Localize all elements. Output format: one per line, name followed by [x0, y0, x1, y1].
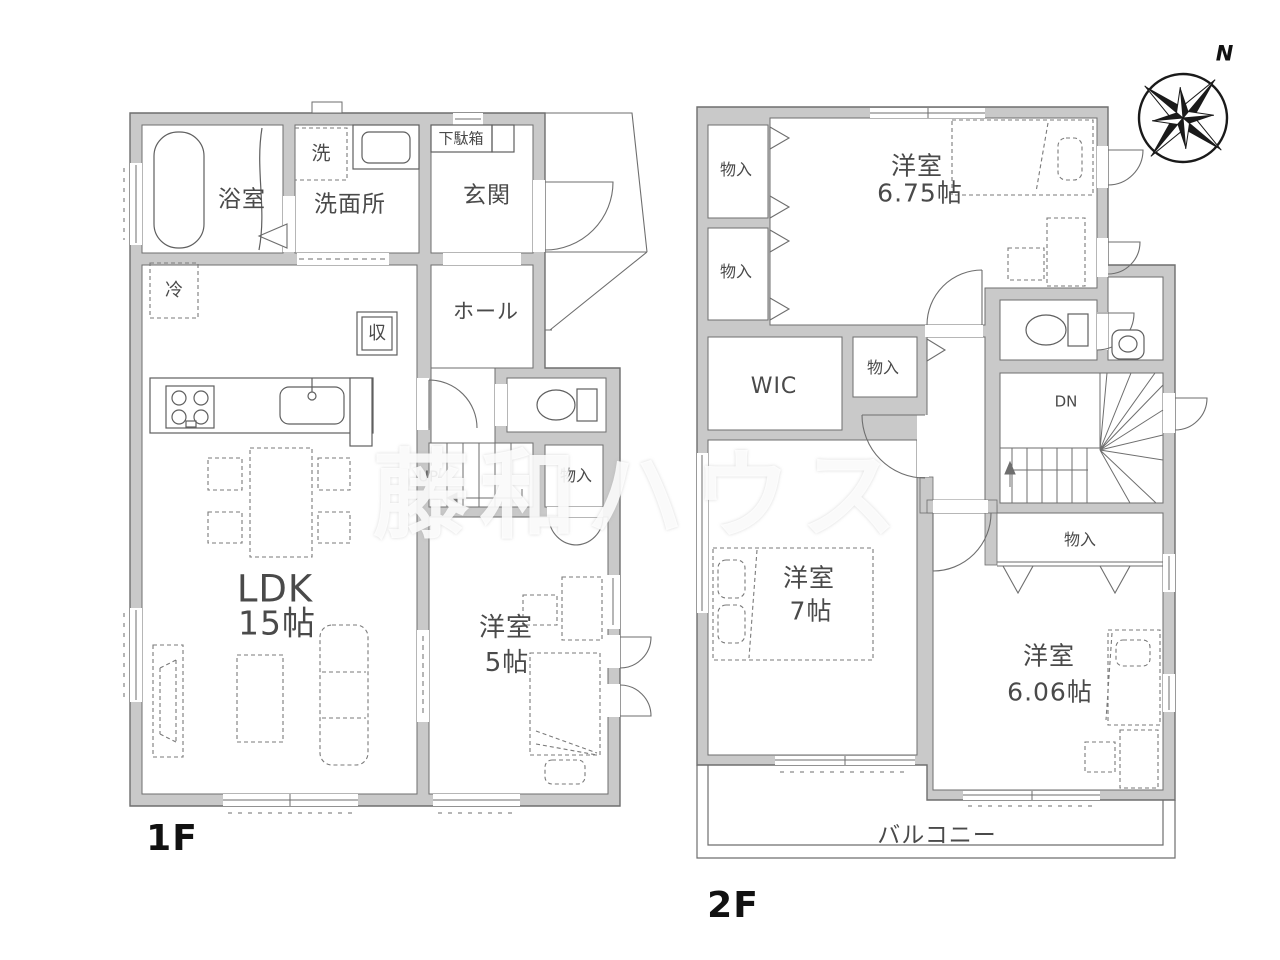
compass-rose: [1113, 48, 1254, 189]
label-ldk-size: 15帖: [238, 607, 316, 640]
label-ldk-name: LDK: [237, 571, 313, 608]
label-bedroom606-name: 洋室: [1023, 644, 1075, 669]
floorplan-canvas: 浴室 洗 洗面所 下駄箱 玄関 ホール 冷 収 LDK 15帖 UP 物入 洋室…: [0, 0, 1280, 960]
label-entrance: 玄関: [463, 185, 511, 208]
label-floor1: 1F: [146, 821, 198, 857]
bedroom5-door-lower: [620, 685, 651, 716]
label-refrigerator: 冷: [165, 282, 183, 300]
room-hall-2f: [927, 337, 985, 505]
label-wic: WIC: [751, 376, 798, 398]
label-bedroom675-size: 6.75帖: [877, 181, 963, 206]
label-north: N: [1216, 44, 1235, 65]
label-bedroom5-size: 5帖: [485, 650, 530, 676]
label-bedroom7-name: 洋室: [783, 566, 835, 591]
label-closet-2f-d: 物入: [1064, 532, 1096, 548]
toilet-bowl-1f: [537, 390, 575, 420]
label-hall: ホール: [453, 302, 519, 323]
kitchen-counter-return: [350, 378, 372, 446]
label-bedroom675-name: 洋室: [891, 154, 943, 179]
label-bedroom7-size: 7帖: [790, 599, 833, 624]
label-closet-2f-a: 物入: [720, 162, 752, 178]
room-stairs-2f: [1000, 373, 1163, 503]
washstand-basin: [362, 132, 410, 163]
label-bedroom606-size: 6.06帖: [1007, 680, 1093, 705]
watermark: 藤和ハウス: [373, 417, 908, 558]
label-bedroom5-name: 洋室: [479, 615, 533, 641]
entrance-door-swing: [545, 182, 613, 250]
label-bath: 浴室: [218, 189, 266, 212]
label-closet-2f-c: 物入: [867, 360, 899, 376]
stairhall-door-swing: [1175, 398, 1207, 430]
label-floor2: 2F: [707, 888, 759, 924]
label-closet-2f-b: 物入: [720, 264, 752, 280]
bedroom5-door-upper: [620, 637, 651, 668]
label-storage: 収: [368, 325, 386, 343]
bathtub: [154, 132, 204, 248]
label-stairs-dn: DN: [1055, 395, 1078, 410]
label-balcony: バルコニー: [877, 825, 997, 848]
label-laundry: 洗: [311, 145, 330, 164]
washbasin-2f: [1112, 330, 1144, 359]
label-shoe-cabinet: 下駄箱: [438, 132, 483, 147]
entrance-porch: [545, 113, 647, 330]
label-washroom: 洗面所: [314, 194, 386, 217]
toilet-bowl-2f: [1026, 315, 1066, 345]
bedroom675-right-door-upper: [1108, 150, 1143, 185]
toilet-tank-2f: [1068, 314, 1088, 346]
